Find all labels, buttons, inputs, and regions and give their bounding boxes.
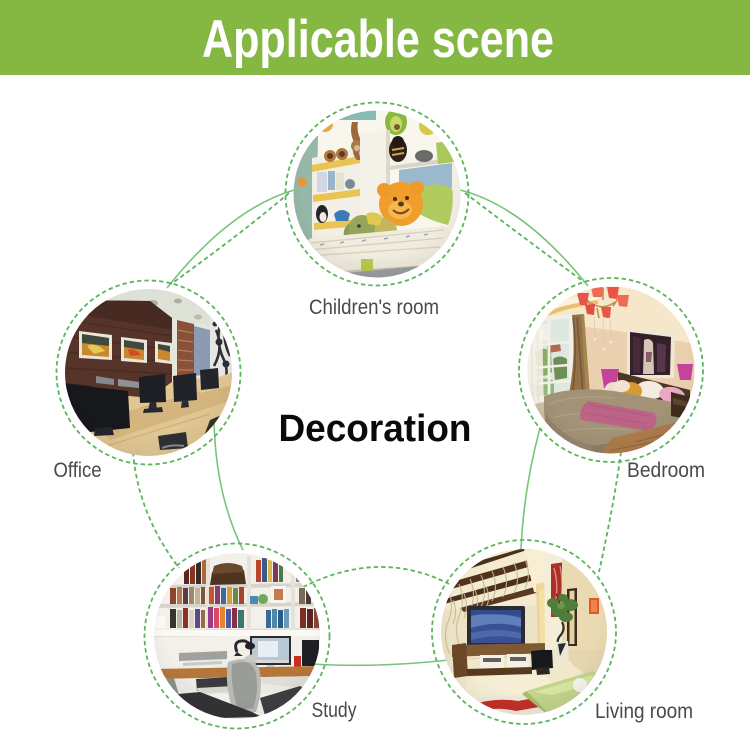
svg-text:Decoration: Decoration [279,408,472,450]
svg-text:Bedroom: Bedroom [627,459,705,482]
svg-text:Children's room: Children's room [309,296,439,319]
svg-text:Study: Study [312,699,357,722]
svg-text:Applicable scene: Applicable scene [202,10,554,69]
svg-text:Office: Office [54,459,102,482]
svg-text:Living room: Living room [595,700,693,723]
